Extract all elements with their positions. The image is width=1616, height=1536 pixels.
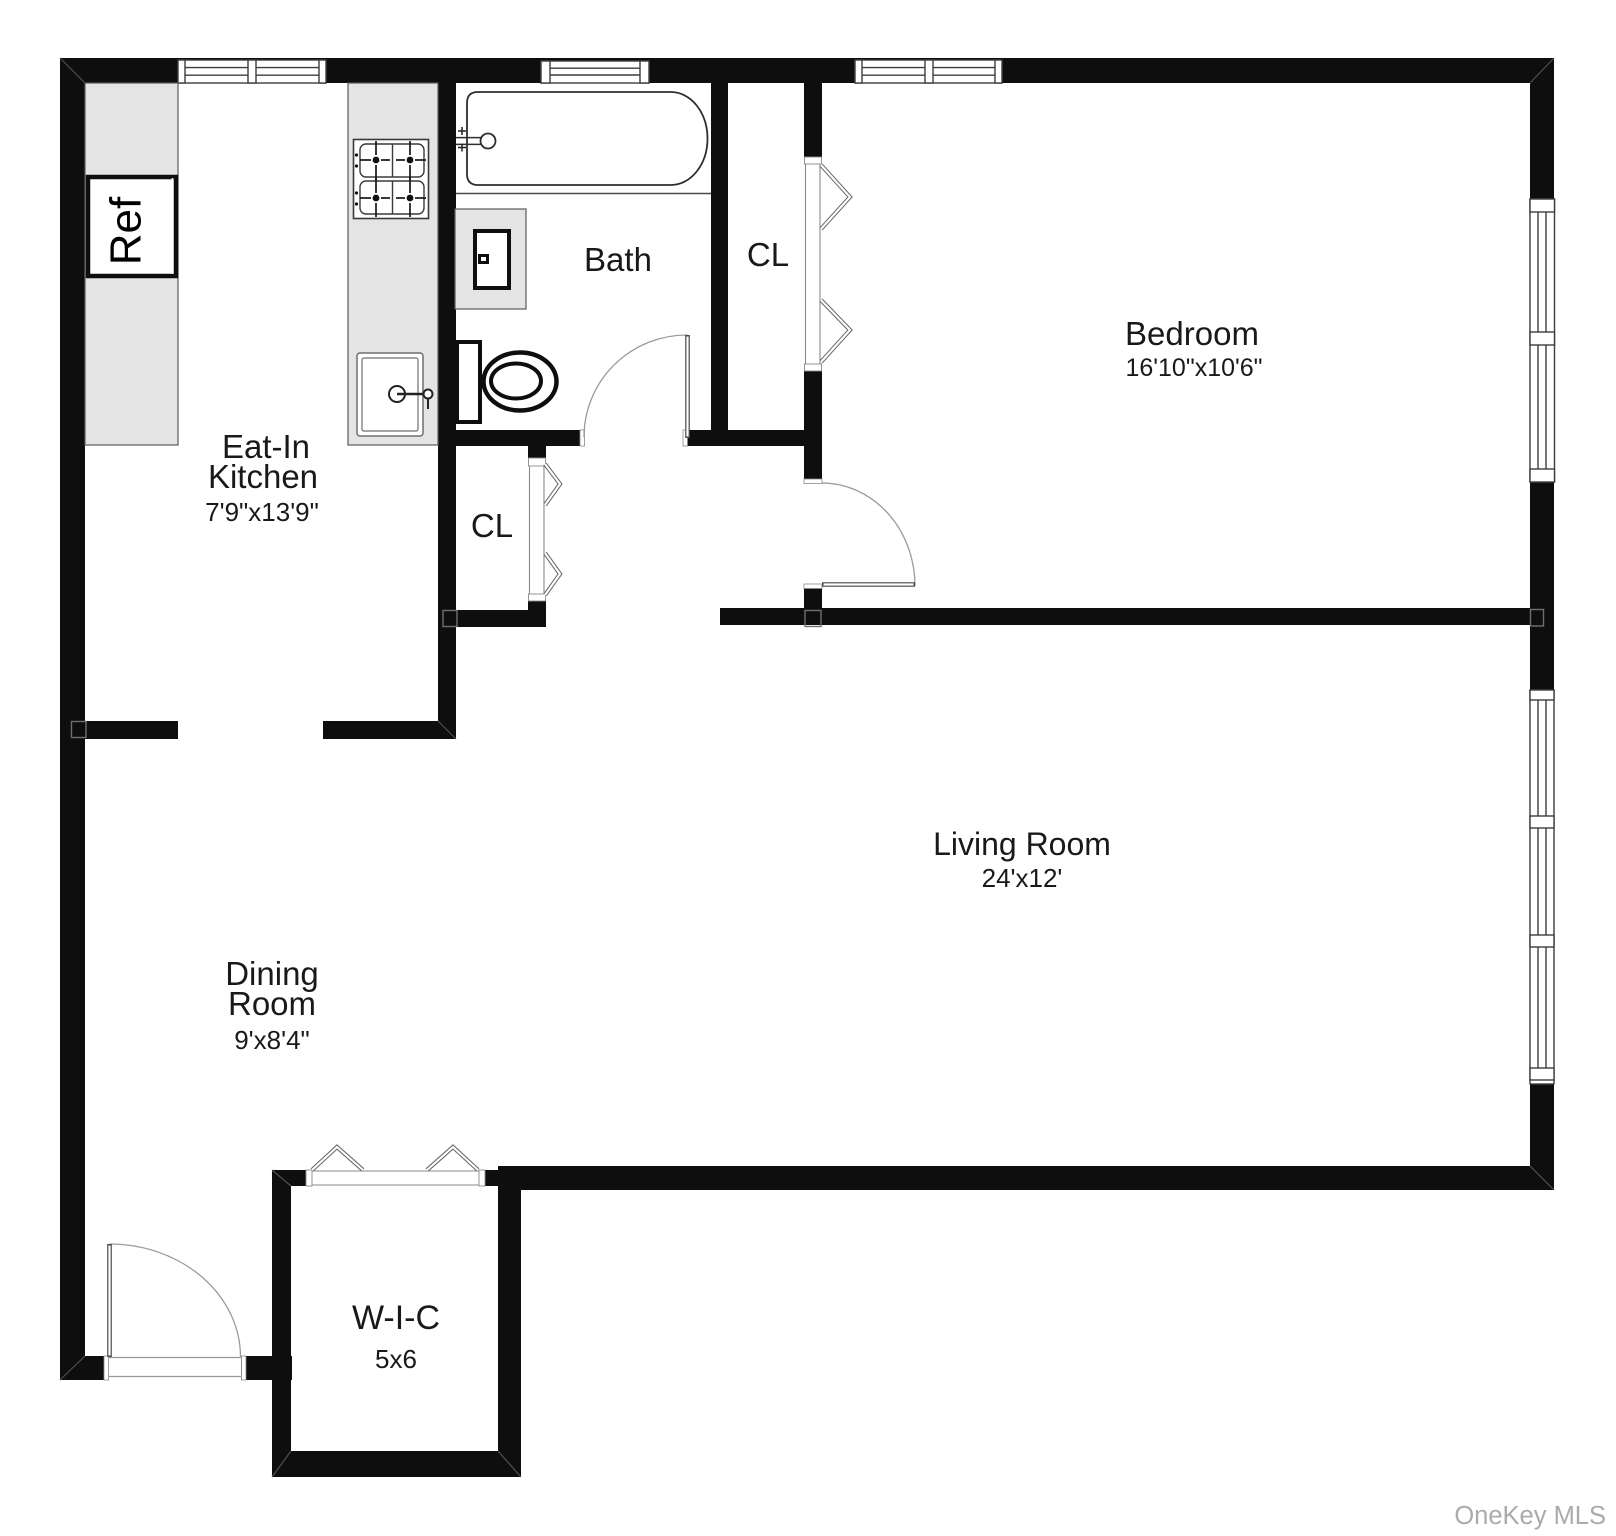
svg-text:Bath: Bath bbox=[584, 241, 652, 278]
svg-text:16'10"x10'6": 16'10"x10'6" bbox=[1125, 354, 1262, 382]
svg-text:Living Room: Living Room bbox=[933, 826, 1111, 862]
svg-text:OneKey MLS: OneKey MLS bbox=[1454, 1502, 1606, 1530]
svg-text:CL: CL bbox=[471, 507, 513, 544]
svg-text:5x6: 5x6 bbox=[375, 1344, 417, 1374]
svg-text:W-I-C: W-I-C bbox=[352, 1299, 440, 1337]
svg-text:CL: CL bbox=[747, 236, 789, 273]
svg-text:Room: Room bbox=[228, 985, 316, 1022]
svg-text:7'9"x13'9": 7'9"x13'9" bbox=[205, 497, 319, 527]
svg-text:Bedroom: Bedroom bbox=[1125, 315, 1259, 352]
svg-text:Kitchen: Kitchen bbox=[208, 458, 318, 495]
svg-text:24'x12': 24'x12' bbox=[982, 863, 1063, 893]
svg-text:Ref: Ref bbox=[102, 196, 151, 265]
svg-text:9'x8'4": 9'x8'4" bbox=[234, 1025, 310, 1055]
